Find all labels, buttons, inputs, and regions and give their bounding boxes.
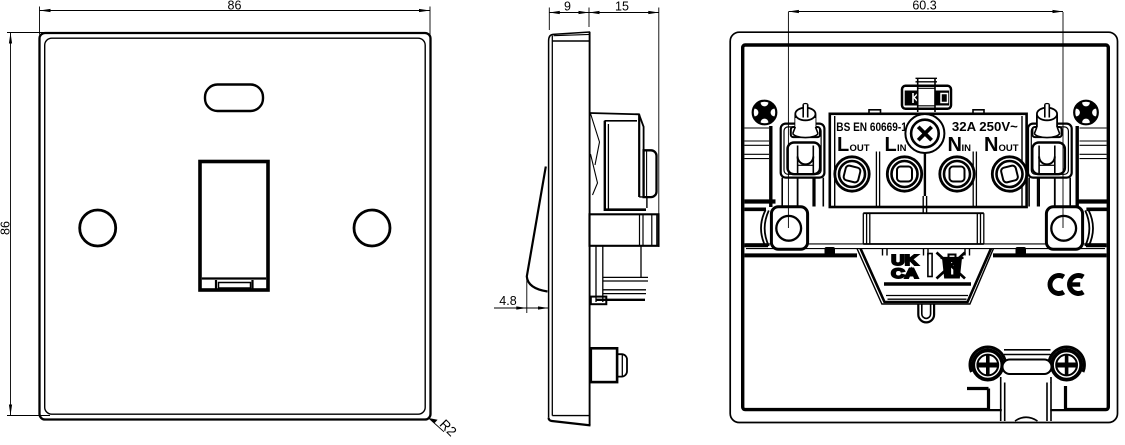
svg-text:86: 86 — [228, 0, 242, 13]
svg-text:60.3: 60.3 — [912, 0, 936, 13]
svg-text:L: L — [837, 134, 849, 156]
svg-text:IN: IN — [962, 143, 972, 154]
svg-text:IN: IN — [897, 143, 907, 154]
svg-text:OUT: OUT — [999, 143, 1019, 154]
svg-text:86: 86 — [0, 221, 13, 235]
svg-text:15: 15 — [615, 0, 629, 14]
svg-text:4.8: 4.8 — [499, 294, 516, 308]
svg-text:CA: CA — [891, 266, 918, 281]
svg-text:BS EN 60669-1: BS EN 60669-1 — [836, 120, 907, 134]
svg-text:OUT: OUT — [850, 143, 870, 154]
svg-text:N: N — [948, 134, 962, 156]
svg-text:9: 9 — [564, 0, 571, 14]
svg-text:N: N — [984, 134, 998, 156]
svg-text:L: L — [885, 134, 897, 156]
svg-text:32A 250V~: 32A 250V~ — [952, 120, 1018, 134]
